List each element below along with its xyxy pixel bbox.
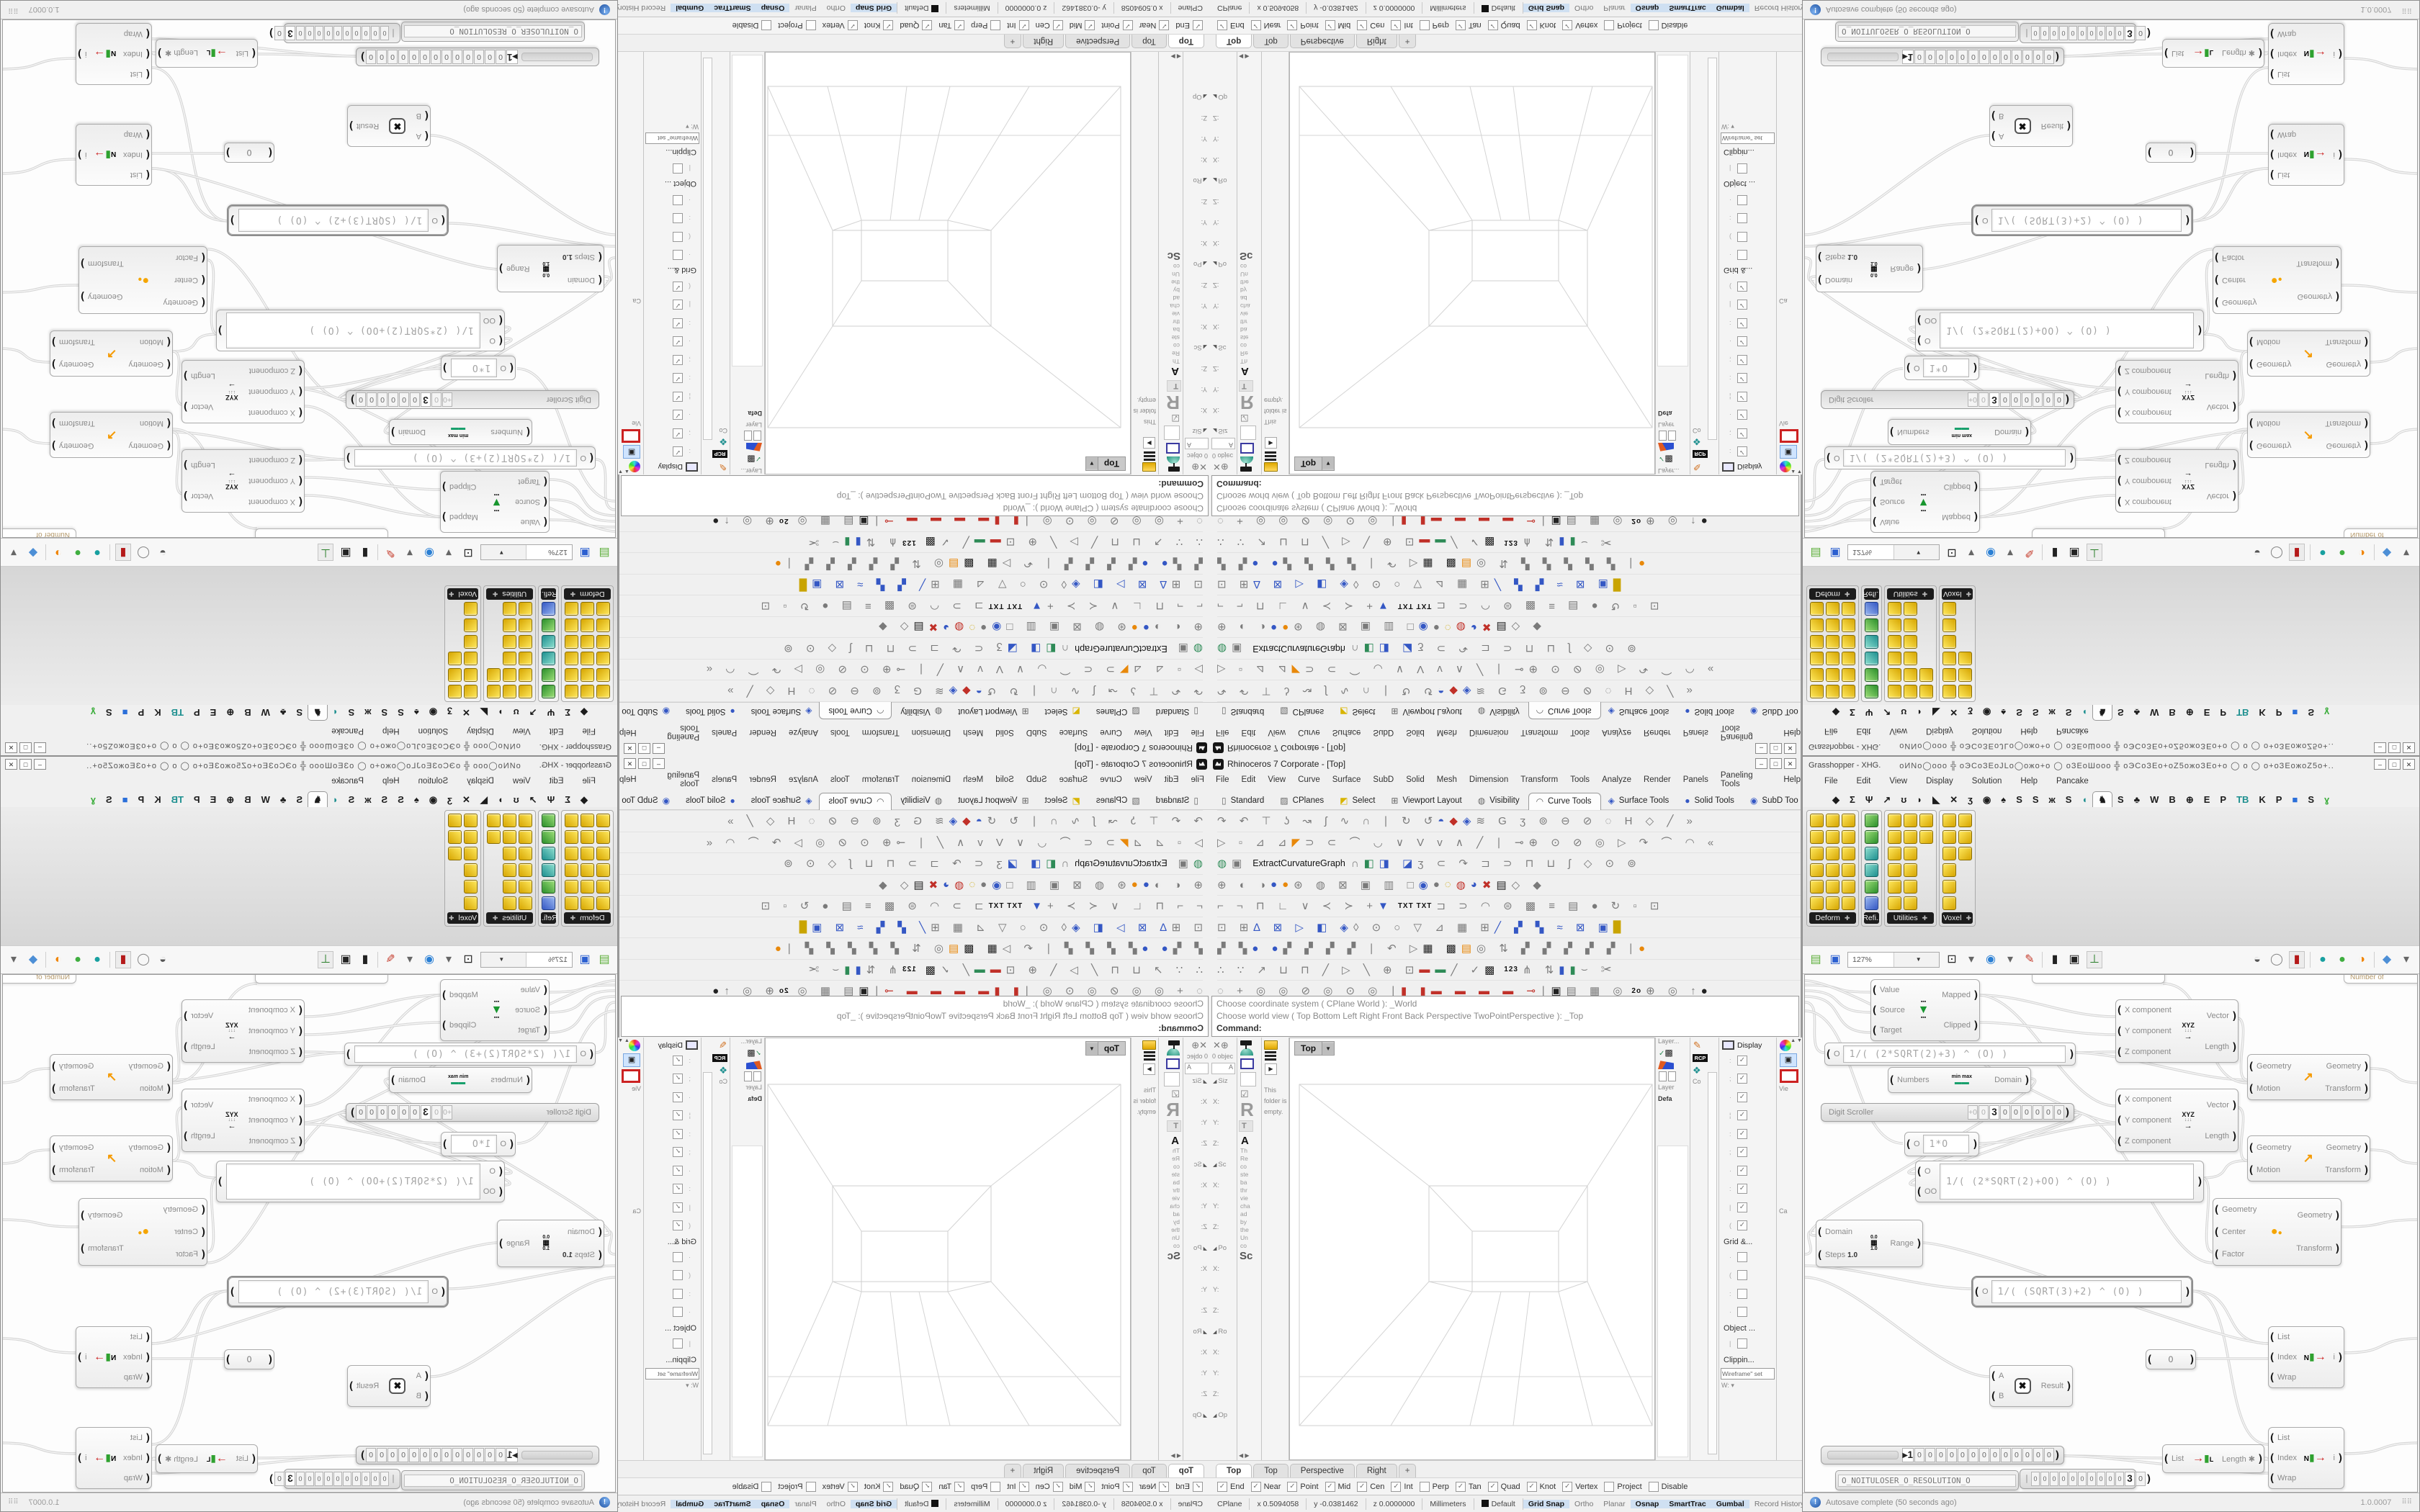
- gh-plugin-tab[interactable]: S: [2027, 792, 2044, 807]
- slider-digit[interactable]: 0: [2000, 1105, 2010, 1120]
- gh-node-list-item[interactable]: (List(Index(WrapN▮→i): [2268, 24, 2343, 85]
- gh-category-label[interactable]: Voxel✚: [447, 588, 478, 600]
- gh-node-multiplication[interactable]: (A(B✖Result): [349, 107, 431, 147]
- slider-digit[interactable]: ▸1: [506, 1448, 518, 1462]
- toolbar-icons-group[interactable]: ▬ ▬ ▬ ▬ ⊸: [879, 984, 989, 996]
- output-i[interactable]: i): [2334, 48, 2344, 60]
- toolbar-icons-group[interactable]: ∣: [869, 516, 880, 528]
- input-value[interactable]: (Value: [521, 516, 549, 528]
- gh-plugin-tab[interactable]: ◉: [424, 705, 442, 720]
- gh-component-icon[interactable]: [464, 602, 478, 616]
- gh-plugin-tab[interactable]: ↗: [1878, 705, 1896, 720]
- output-range[interactable]: Range): [498, 262, 529, 275]
- menu-item[interactable]: Solid: [995, 775, 1014, 784]
- toolbar-icons-group[interactable]: ∴ ∵ ↗ ⊔ ⊓ ╱ ▷ ╲ ⊕ ⊡: [1217, 963, 1419, 976]
- gh-component-icon[interactable]: [581, 863, 594, 877]
- checkbox[interactable]: [673, 195, 683, 205]
- osnap-perp[interactable]: Perp: [971, 1482, 1000, 1492]
- slider-digit[interactable]: 0: [496, 1448, 506, 1462]
- gh-node-list-item[interactable]: (List(Index(WrapN▮→i): [2268, 1326, 2343, 1387]
- slider-digit[interactable]: ▸1: [1902, 50, 1914, 64]
- play-button[interactable]: ▶: [1265, 1063, 1277, 1075]
- display-checkbox-row[interactable]: ·: [644, 1303, 701, 1322]
- rhino-command-area[interactable]: Choose coordinate system ( CPlane World …: [1211, 996, 1799, 1037]
- gh-component-icon[interactable]: [1904, 635, 1917, 649]
- toolbar-icons-group[interactable]: ▞ ▞ ▞ ▞ ∣ ↶ ▷: [1283, 557, 1423, 570]
- toolbar-icons-group[interactable]: ⊡ ⊞: [1217, 921, 1253, 934]
- input-geometry[interactable]: (Geometry: [2248, 1060, 2291, 1073]
- output-vector[interactable]: Vector): [182, 1099, 213, 1112]
- gh-node-bounds[interactable]: (Numbersmin max▬▬Domain): [1888, 420, 2030, 445]
- osnap-cen[interactable]: ✓Cen: [1036, 21, 1063, 31]
- gh-plugin-tab[interactable]: ◗: [1912, 792, 1927, 807]
- gh-component-icon[interactable]: [1888, 896, 1901, 910]
- gh-component-icon[interactable]: [1888, 602, 1901, 616]
- gh-component-icon[interactable]: [1958, 685, 1972, 698]
- toolbar-icons-group[interactable]: ⊕ ◎ ↑: [1646, 516, 1701, 528]
- status-field[interactable]: y -0.0381462: [1054, 1498, 1113, 1510]
- input-o[interactable]: (O: [1825, 1048, 1840, 1061]
- checkbox[interactable]: ✓: [1737, 410, 1747, 420]
- status-field[interactable]: Millimeters: [946, 3, 997, 14]
- panel-row[interactable]: Z:: [1210, 1390, 1237, 1411]
- gh-component-icon[interactable]: [1810, 880, 1824, 894]
- gh-plugin-tab[interactable]: ʒ: [1963, 792, 1978, 807]
- toolbar-icons-group[interactable]: ▤ ▦ ◎: [793, 984, 854, 996]
- output-length-[interactable]: Length ✱): [156, 47, 198, 60]
- osnap-mid[interactable]: ✓Mid: [1325, 21, 1351, 31]
- toolbar-icons-group[interactable]: ▩: [1484, 963, 1500, 976]
- vertical-scrollbar[interactable]: [1708, 1072, 1717, 1454]
- toolbar-icons-group[interactable]: ◍: [1217, 857, 1232, 870]
- checkbox[interactable]: ✓: [673, 1166, 683, 1176]
- toolbar-icons-group[interactable]: ▮ ▮: [989, 516, 1019, 528]
- gh-plugin-tab[interactable]: ◉: [424, 792, 442, 807]
- input-o[interactable]: (O: [1905, 1138, 1920, 1151]
- panel-row[interactable]: ◢Po: [1210, 1244, 1237, 1265]
- input-wrap[interactable]: (Wrap: [124, 1371, 151, 1384]
- viewport-tab-top[interactable]: Top: [1253, 1464, 1289, 1477]
- gh-menu-item[interactable]: File: [582, 777, 596, 786]
- gh-component-icon[interactable]: [519, 685, 532, 698]
- gh-component-icon[interactable]: [519, 896, 532, 910]
- display-checkbox-row[interactable]: |: [644, 160, 701, 179]
- toolbar-icons-group[interactable]: ◧: [1041, 642, 1056, 655]
- checkbox[interactable]: ✓: [1251, 1482, 1261, 1492]
- gh-node-list-item[interactable]: (List(Index(WrapN▮→i): [77, 1427, 152, 1488]
- input-target[interactable]: (Target: [1871, 1024, 1902, 1037]
- input-oo[interactable]: (OO: [1916, 1185, 1937, 1198]
- toolbar-icons-group[interactable]: ▞ ▞ ▞ ▞ ∣ ↶ ▷: [1283, 942, 1423, 955]
- input-source[interactable]: (Source: [515, 495, 549, 508]
- gh-component-icon[interactable]: [1810, 685, 1824, 698]
- gh-canvas[interactable]: Number of(Value(Source(Target▪▪▪▼▪▪▪Mapp…: [1804, 19, 2418, 538]
- gh-node-vector-xyz[interactable]: (X component(Y component(Z componentXYZ↓…: [2115, 451, 2237, 513]
- gh-toolbar-icon[interactable]: ⊥: [2087, 544, 2102, 561]
- gh-component-icon[interactable]: [487, 814, 501, 827]
- slider-digit[interactable]: 0: [2044, 50, 2054, 64]
- toolbar-tab-curve-tools[interactable]: ◠Curve Tools: [819, 702, 892, 719]
- input-list[interactable]: (List: [236, 1452, 257, 1465]
- slider-digit[interactable]: 0: [1979, 50, 1989, 64]
- toolbar-icons-group[interactable]: ExtractCurvatureGraph: [1075, 858, 1168, 868]
- checkbox[interactable]: ✓: [883, 21, 893, 31]
- gh-canvas[interactable]: Number of(Value(Source(Target▪▪▪▼▪▪▪Mapp…: [2, 19, 616, 538]
- toolbar-icons-group[interactable]: ▩: [920, 536, 936, 549]
- gh-node-clipped-node[interactable]: [2032, 974, 2165, 984]
- gh-component-icon[interactable]: [596, 685, 610, 698]
- gh-plugin-tab[interactable]: E: [2199, 705, 2215, 720]
- toolbar-icons-group[interactable]: ◈: [944, 685, 958, 698]
- slider-digit[interactable]: 0: [333, 1472, 342, 1486]
- gh-plugin-tab[interactable]: ♣: [2129, 705, 2146, 720]
- menu-item[interactable]: View: [1268, 728, 1286, 737]
- rhino-titlebar[interactable]: Rhinoceros 7 Corporate - [Top] –□✕: [619, 756, 1210, 772]
- display-checkbox-row[interactable]: ·✓: [1719, 406, 1776, 425]
- gh-plugin-tab[interactable]: ◖: [328, 792, 344, 807]
- gh-toolbar-icon[interactable]: ◯: [2269, 544, 2284, 560]
- gh-plugin-tab[interactable]: ✕: [457, 792, 475, 807]
- panel-row[interactable]: ◢Po: [1183, 1244, 1210, 1265]
- output-length[interactable]: Length): [182, 370, 215, 383]
- display-checkbox-row[interactable]: :✓: [1719, 1180, 1776, 1199]
- gh-toolbar-icon[interactable]: ▾: [442, 544, 456, 560]
- layer-default-row[interactable]: Defa: [1656, 410, 1690, 417]
- toolbar-icons-group[interactable]: ◧: [1041, 857, 1056, 870]
- input-x-component[interactable]: (X component: [248, 1004, 304, 1017]
- panel-row[interactable]: X:: [1183, 310, 1210, 330]
- gh-toolbar-icon[interactable]: ▤: [597, 544, 611, 560]
- toolbar-icons-group[interactable]: ∴ ∵ ↗ ⊔ ⊓ ╱ ▷ ╲ ⊕ ⊡: [1001, 536, 1203, 549]
- menu-item[interactable]: Render: [749, 775, 776, 784]
- input-center[interactable]: (Center: [174, 1225, 207, 1238]
- panel-row[interactable]: Z:: [1210, 1223, 1237, 1244]
- gh-node-multiplication[interactable]: (A(B✖Result): [1989, 1365, 2071, 1405]
- gh-component-icon[interactable]: [1865, 668, 1878, 682]
- input-source[interactable]: (Source: [1871, 1004, 1905, 1017]
- toolbar-icons-group[interactable]: ◕: [1471, 621, 1482, 634]
- toolbar-tab-subd-too[interactable]: ◉SubD Too: [1743, 703, 1807, 719]
- gh-toolbar-icon[interactable]: ◒: [156, 544, 170, 560]
- gh-category-label[interactable]: Refi..: [541, 588, 556, 600]
- gh-node-move[interactable]: (Geometry(Motion↗Geometry)Transform): [2247, 1135, 2369, 1180]
- menu-item[interactable]: Paneling Tools: [1721, 724, 1771, 741]
- gh-toolbar-icon[interactable]: ⊡: [461, 952, 475, 968]
- gh-node-list-length[interactable]: (List→▮LLength ✱): [157, 1444, 258, 1472]
- gh-component-icon[interactable]: [1865, 880, 1878, 894]
- checkbox[interactable]: ✓: [673, 373, 683, 383]
- camera-icon[interactable]: ▣: [1780, 1053, 1797, 1067]
- tab-chip[interactable]: T: [1239, 1120, 1253, 1132]
- expression-text[interactable]: 1/( (2*SQRT(2)+OO) ^ (O) ): [1940, 1164, 2194, 1200]
- toolbar-icons-group[interactable]: ◇ ◆: [1512, 621, 1546, 634]
- output-transform[interactable]: Transform): [50, 418, 95, 431]
- gh-component-icon[interactable]: [1842, 830, 1855, 844]
- expression-text[interactable]: 1/( (2*SQRT(2)+3) ^ (O) ): [1843, 449, 2066, 467]
- status-toggle-osnap[interactable]: Osnap: [1631, 4, 1664, 13]
- toolbar-icons-group[interactable]: ↷ ↶ ⊤ ʖ ↝ ʃ ∿ ∩ ∣ ↻ ↺: [1217, 814, 1438, 827]
- new-layer-icons[interactable]: [1659, 431, 1687, 441]
- slider-digit[interactable]: 0: [2106, 26, 2115, 40]
- panel-row[interactable]: X:: [1210, 1098, 1237, 1119]
- menu-item[interactable]: Paneling Tools: [649, 724, 699, 741]
- checkbox[interactable]: ✓: [1456, 1482, 1466, 1492]
- toolbar-tab-select[interactable]: ◩Select: [1332, 703, 1384, 719]
- osnap-quad[interactable]: ✓Quad: [900, 21, 932, 31]
- slider-digit[interactable]: 0: [380, 1472, 389, 1486]
- gh-node-move[interactable]: (Geometry(Motion↗Geometry)Transform): [51, 332, 173, 377]
- toolbar-icons-group[interactable]: ◉: [1419, 878, 1433, 891]
- checkbox[interactable]: [761, 1482, 771, 1492]
- input-list[interactable]: (List: [2269, 68, 2290, 81]
- toolbar-icons-group[interactable]: 2o: [779, 987, 789, 995]
- gh-plugin-tab[interactable]: ɣ: [86, 792, 101, 807]
- gh-component-icon[interactable]: [1826, 863, 1839, 877]
- status-toggle-planar[interactable]: Planar: [789, 1500, 821, 1508]
- gh-node-list-item[interactable]: (List(Index(WrapN▮→i): [77, 1326, 152, 1387]
- gh-toolbar-icon[interactable]: ▾: [1964, 952, 1978, 968]
- toolbar-icons-group[interactable]: ⊃ ⊂ ⌒ ◡ ∨ V v ∧ ╱ ∣ ⊸: [891, 834, 1114, 850]
- gh-toolbar-icon[interactable]: ◆: [2380, 952, 2394, 968]
- toolbar-tab-surface-tools[interactable]: ◈Surface Tools: [1601, 703, 1678, 719]
- osnap-cen[interactable]: ✓Cen: [1036, 1482, 1063, 1492]
- gh-node-digit-scroller[interactable]: 000000000030): [2020, 23, 2136, 43]
- status-toggle-gumbal[interactable]: Gumbal: [1711, 4, 1749, 13]
- toolbar-icons-group[interactable]: ◌ + ◎ ◎ ⊘ ◎ ⊙ ◎ ∣: [1019, 984, 1203, 996]
- status-field[interactable]: y -0.0381462: [1307, 3, 1366, 14]
- slider-digit[interactable]: 0: [1947, 50, 1957, 64]
- status-field[interactable]: Millimeters: [946, 1498, 997, 1510]
- slider-digit[interactable]: 0: [2136, 26, 2146, 40]
- input-geometry[interactable]: (Geometry: [2248, 359, 2291, 372]
- menu-item[interactable]: Edit: [1242, 775, 1256, 784]
- gh-plugin-tab[interactable]: Ψ: [542, 705, 560, 720]
- toolbar-icons-group[interactable]: ▬: [969, 963, 985, 976]
- toolbar-icons-group[interactable]: ●: [1433, 621, 1445, 634]
- osnap-mid[interactable]: ✓Mid: [1070, 21, 1095, 31]
- display-checkbox-row[interactable]: :: [644, 210, 701, 228]
- gh-component-icon[interactable]: [503, 635, 516, 649]
- checkbox[interactable]: ✓: [1737, 318, 1747, 328]
- gh-toolbar-icon[interactable]: ◯: [136, 952, 151, 968]
- input-x-component[interactable]: (X component: [2116, 406, 2172, 419]
- slider-digit[interactable]: 0: [377, 50, 387, 64]
- gh-component-icon[interactable]: [503, 602, 516, 616]
- toolbar-icons-group[interactable]: ▤: [908, 878, 923, 891]
- menu-item[interactable]: Analyze: [789, 775, 818, 784]
- gh-toolbar-icon[interactable]: ●: [71, 952, 85, 968]
- gh-component-icon[interactable]: [542, 814, 555, 827]
- gh-component-icon[interactable]: [1842, 880, 1855, 894]
- gh-component-icon[interactable]: [542, 652, 555, 665]
- toolbar-icons-group[interactable]: ∣: [1541, 984, 1551, 996]
- input-y-component[interactable]: (Y component: [248, 1114, 304, 1127]
- gh-plugin-tab-selected[interactable]: ♞: [2092, 791, 2112, 807]
- status-field[interactable]: Default: [897, 3, 946, 14]
- gh-component-icon[interactable]: [565, 863, 578, 877]
- toolbar-icons-group[interactable]: ▤: [1461, 557, 1476, 570]
- toolbar-icons-group[interactable]: █: [794, 921, 807, 933]
- expression-text[interactable]: 1*O: [1923, 1135, 1969, 1153]
- gh-component-icon[interactable]: [1919, 830, 1933, 844]
- window-button[interactable]: □: [19, 742, 32, 753]
- gh-plugin-tab[interactable]: ✕: [457, 705, 475, 720]
- gh-plugin-tab[interactable]: ◉: [1978, 705, 1996, 720]
- toolbar-icons-group[interactable]: ⊕ ◎ ↑: [719, 984, 774, 996]
- menu-item[interactable]: Surface: [1059, 728, 1088, 737]
- toolbar-icons-group[interactable]: ◆: [1449, 685, 1463, 698]
- output-transform[interactable]: Transform): [50, 336, 95, 349]
- gh-plugin-tab[interactable]: E: [205, 705, 222, 720]
- window-button[interactable]: ✕: [5, 759, 17, 770]
- play-button[interactable]: ▶: [1265, 437, 1277, 449]
- display-checkbox-row[interactable]: ·: [644, 191, 701, 210]
- checkbox[interactable]: ✓: [673, 1129, 683, 1139]
- toolbar-icons-group[interactable]: ▣: [853, 984, 869, 996]
- gh-toolbar-icon[interactable]: ▾: [6, 952, 21, 968]
- status-toggle-record-history[interactable]: Record History: [1749, 4, 1802, 13]
- slider-digit[interactable]: 0: [296, 1472, 305, 1486]
- panel-row[interactable]: Y:: [1210, 122, 1237, 143]
- gh-component-icon[interactable]: [1888, 863, 1901, 877]
- menu-item[interactable]: Tools: [1570, 775, 1590, 784]
- gh-plugin-tab[interactable]: ■: [117, 705, 133, 720]
- gh-node-expression[interactable]: (O1*O): [442, 357, 516, 380]
- checkbox[interactable]: ✓: [1737, 1166, 1747, 1176]
- toolbar-icons-group[interactable]: ▣: [1232, 642, 1247, 655]
- slider-digit[interactable]: 0: [2054, 392, 2064, 407]
- gh-toolbar-icon[interactable]: ◆: [26, 952, 40, 968]
- toolbar-tab-select[interactable]: ◩Select: [1036, 703, 1088, 719]
- window-button[interactable]: –: [1755, 743, 1767, 754]
- output-geometry[interactable]: Geometry): [2326, 359, 2370, 372]
- slider-digit[interactable]: 0: [274, 1472, 284, 1486]
- toolbar-icons-group[interactable]: ▬: [985, 536, 1001, 549]
- rhino-command-area[interactable]: Choose coordinate system ( CPlane World …: [621, 996, 1209, 1037]
- gh-component-icon[interactable]: [503, 814, 516, 827]
- toolbar-icons-group[interactable]: TXT TXT: [1398, 902, 1433, 910]
- menu-item[interactable]: Paneling Tools: [649, 771, 699, 788]
- gh-plugin-tab[interactable]: Ψ: [542, 792, 560, 807]
- checkbox[interactable]: [1737, 250, 1747, 260]
- checkbox[interactable]: ✓: [673, 336, 683, 346]
- output-range[interactable]: Range): [1891, 1237, 1922, 1250]
- panel-row[interactable]: X:: [1183, 226, 1210, 247]
- toolbar-icons-group[interactable]: ▤: [944, 942, 959, 955]
- display-checkbox-row[interactable]: ¦✓: [644, 387, 701, 406]
- toolbar-icons-group[interactable]: 123: [902, 539, 916, 546]
- gh-plugin-tab[interactable]: ◗: [1912, 705, 1927, 720]
- toolbar-icons-group[interactable]: ╱ ✓: [1451, 536, 1484, 549]
- slider-digit[interactable]: 0: [1936, 50, 1946, 64]
- toolbar-icons-group[interactable]: ▞ ▚: [1217, 942, 1252, 955]
- slider-digit[interactable]: 0: [367, 1105, 377, 1120]
- status-field[interactable]: z 0.0000000: [1366, 3, 1423, 14]
- checkbox[interactable]: ✓: [1217, 1482, 1227, 1492]
- input-y-component[interactable]: (Y component: [2116, 385, 2172, 398]
- gh-node-multiplication[interactable]: (A(B✖Result): [349, 1365, 431, 1405]
- gh-node-remap-numbers[interactable]: (Value(Source(Target▪▪▪▼▪▪▪Mapped)Clippe…: [442, 979, 550, 1040]
- gh-toolbar-icon[interactable]: ✎: [383, 952, 398, 968]
- toolbar-tab-viewport-layout[interactable]: ⊞Viewport Layout: [949, 703, 1036, 719]
- osnap-tan[interactable]: ✓Tan: [1456, 21, 1482, 31]
- input-oo[interactable]: (OO: [483, 314, 504, 327]
- display-checkbox-row[interactable]: ·✓: [1719, 1088, 1776, 1107]
- viewport-title[interactable]: Top: [1098, 1042, 1125, 1055]
- checkbox[interactable]: [1420, 21, 1430, 31]
- input-motion[interactable]: (Motion: [140, 336, 172, 349]
- toolbar-icons-group[interactable]: ▬: [1419, 963, 1435, 976]
- checkbox[interactable]: ✓: [1193, 21, 1203, 31]
- toolbar-icons-group[interactable]: ◎ ⇅ ▞ ▞ ▞ ▞ ▞ ∣: [781, 557, 944, 570]
- gh-menu-item[interactable]: Pancake: [2056, 777, 2089, 786]
- gh-toolbar-icon[interactable]: ▮: [115, 951, 131, 968]
- checkbox[interactable]: [1737, 163, 1747, 174]
- slider-digit[interactable]: 0: [2044, 1448, 2054, 1462]
- slider-digit[interactable]: 0: [2054, 1105, 2064, 1120]
- output-clipped[interactable]: Clipped): [1944, 1019, 1979, 1032]
- scroll-arrows[interactable]: ◀ ▶: [1239, 1452, 1250, 1459]
- display-checkbox-row[interactable]: :: [644, 1284, 701, 1303]
- menu-item[interactable]: View: [1134, 728, 1152, 737]
- input-a[interactable]: (A: [1990, 1369, 2004, 1382]
- new-layer-icons[interactable]: [733, 1071, 761, 1081]
- gh-menu-item[interactable]: Edit: [550, 777, 564, 786]
- toolbar-tab-subd-too[interactable]: ◉SubD Too: [613, 703, 677, 719]
- status-field[interactable]: Millimeters: [1422, 1498, 1474, 1510]
- toolbar-icons-group[interactable]: ⊛ ◍ ⊠ ▣ ▥ □: [1001, 621, 1126, 634]
- viewport-tab-perspective[interactable]: Perspective: [1065, 1464, 1130, 1477]
- safe-frame-icon[interactable]: [622, 429, 640, 443]
- slider-digit[interactable]: 0: [362, 1472, 370, 1486]
- gh-component-icon[interactable]: [596, 618, 610, 632]
- gh-node-range[interactable]: (Domain(Steps1.00.0▦1.0Range): [498, 246, 604, 292]
- toolbar-icons-group[interactable]: ●: [1639, 557, 1650, 570]
- toolbar-icons-group[interactable]: ●: [707, 985, 719, 996]
- gh-toolbar-icon[interactable]: ●: [90, 952, 104, 968]
- viewport-top[interactable]: Top▼: [765, 52, 1131, 474]
- input-z-component[interactable]: (Z component: [2116, 454, 2171, 467]
- menu-item[interactable]: Solid: [995, 728, 1014, 737]
- gh-plugin-tab[interactable]: ♠: [1996, 792, 2011, 807]
- slider-digit[interactable]: 0: [2069, 1472, 2077, 1486]
- toolbar-icons-group[interactable]: ▮ ▮: [989, 984, 1019, 996]
- gh-component-icon[interactable]: [1888, 668, 1901, 682]
- input-list[interactable]: (List: [130, 1431, 151, 1444]
- checkbox[interactable]: ✓: [1737, 1056, 1747, 1066]
- toolbar-tab-visibility[interactable]: ◍Visibility: [892, 793, 949, 809]
- output-i[interactable]: i): [76, 1452, 86, 1464]
- status-toggle-grid-snap[interactable]: Grid Snap: [1523, 4, 1569, 13]
- display-checkbox-row[interactable]: ·: [1719, 191, 1776, 210]
- input-value[interactable]: (Value: [1871, 984, 1899, 996]
- gh-component-icon[interactable]: [1942, 814, 1956, 827]
- gh-component-icon[interactable]: [1826, 635, 1839, 649]
- toolbar-tab-curve-tools[interactable]: ◠Curve Tools: [1528, 702, 1601, 719]
- display-checkbox-row[interactable]: :✓: [1719, 1125, 1776, 1143]
- input-target[interactable]: (Target: [518, 1024, 549, 1037]
- gh-plugin-tab[interactable]: K: [149, 792, 166, 807]
- input-geometry[interactable]: (Geometry: [129, 440, 172, 453]
- expression-text[interactable]: 1/( (SQRT(3)+2) ^ (O) ): [238, 209, 429, 232]
- output-length-[interactable]: Length ✱): [2222, 47, 2264, 60]
- gh-component-icon[interactable]: [1865, 847, 1878, 860]
- gh-node-digit-scroller[interactable]: 000000000030): [284, 23, 400, 43]
- panel-row[interactable]: Y:: [1210, 289, 1237, 310]
- gh-plugin-tab[interactable]: TB: [2231, 792, 2254, 807]
- checkbox[interactable]: [990, 1482, 1000, 1492]
- input-wrap[interactable]: (Wrap: [124, 27, 151, 40]
